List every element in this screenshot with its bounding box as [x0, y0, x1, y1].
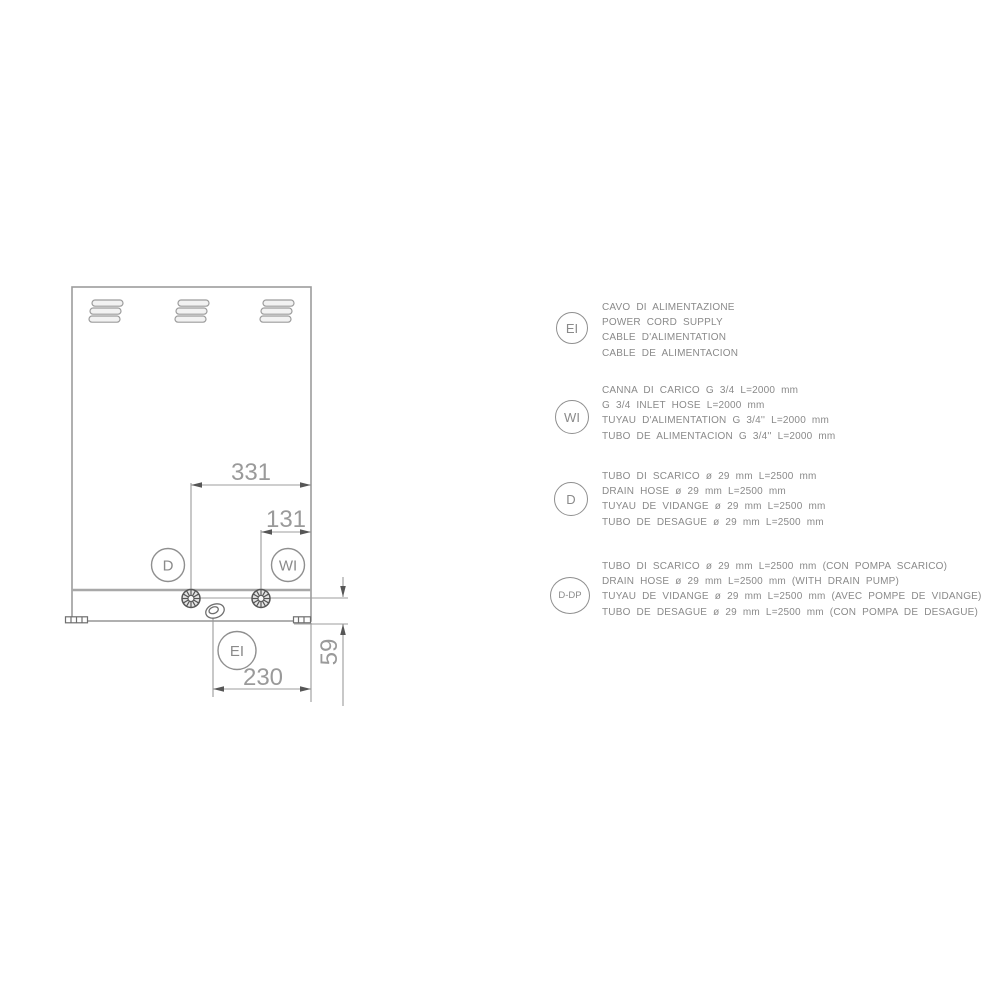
vent-slot: [178, 300, 209, 306]
technical-drawing-svg: 331 131 230 59: [0, 0, 1000, 1000]
dim-label-331: 331: [231, 459, 271, 486]
arrow-left-icon: [213, 686, 224, 692]
vent-grille-left: [89, 300, 123, 322]
legend-text-line: DRAIN HOSE ø 29 mm L=2500 mm (WITH DRAIN…: [602, 574, 982, 589]
page: 331 131 230 59: [0, 0, 1000, 1000]
callout-drain-label: D: [163, 558, 174, 575]
callout-water-inlet: WI: [272, 549, 305, 582]
legend-symbol-wi: WI: [555, 400, 589, 434]
callout-water-inlet-label: WI: [279, 558, 297, 575]
legend-symbol-d: D: [554, 482, 588, 516]
legend-text-line: POWER CORD SUPPLY: [602, 315, 738, 330]
legend-text-line: TUYAU DE VIDANGE ø 29 mm L=2500 mm (AVEC…: [602, 589, 982, 604]
dimension-131: 131: [261, 506, 311, 535]
left-foot: [66, 617, 88, 623]
legend-text-line: TUBO DE DESAGUE ø 29 mm L=2500 mm (CON P…: [602, 605, 982, 620]
legend-text-line: G 3/4 INLET HOSE L=2000 mm: [602, 398, 835, 413]
legend-text-line: TUBO DI SCARICO ø 29 mm L=2500 mm: [602, 469, 826, 484]
vent-grille-right: [260, 300, 294, 322]
vent-slot: [260, 316, 291, 322]
callout-electric-inlet-label: EI: [230, 643, 244, 660]
arrow-down-icon: [340, 586, 346, 597]
legend-text-line: CABLE DE ALIMENTACION: [602, 346, 738, 361]
vent-slot: [89, 316, 120, 322]
right-foot: [294, 617, 311, 623]
callout-electric-inlet: EI: [218, 632, 256, 670]
vent-slot: [90, 308, 121, 314]
legend-text-line: CANNA DI CARICO G 3/4 L=2000 mm: [602, 383, 835, 398]
drain-connector-rosette: [182, 590, 200, 608]
dim-label-59: 59: [316, 639, 343, 666]
vent-slot: [175, 316, 206, 322]
vent-grille-center: [175, 300, 209, 322]
legend-text-line: TUBO DE ALIMENTACION G 3/4'' L=2000 mm: [602, 429, 835, 444]
dimension-59: 59: [316, 577, 346, 706]
vent-slot: [176, 308, 207, 314]
vent-slot: [263, 300, 294, 306]
legend-text-line: TUBO DI SCARICO ø 29 mm L=2500 mm (CON P…: [602, 559, 982, 574]
legend-text-line: TUBO DE DESAGUE ø 29 mm L=2500 mm: [602, 515, 826, 530]
dim-label-131: 131: [266, 506, 306, 533]
callout-drain: D: [152, 549, 185, 582]
legend-text-line: CAVO DI ALIMENTAZIONE: [602, 300, 738, 315]
legend-symbol-ei: EI: [556, 312, 588, 344]
vent-slot: [261, 308, 292, 314]
arrow-up-icon: [340, 624, 346, 635]
legend-symbol-d-dp: D-DP: [550, 577, 590, 614]
arrow-right-icon: [300, 686, 311, 692]
water-inlet-connector-rosette: [252, 590, 270, 608]
legend-text-line: CABLE D'ALIMENTATION: [602, 330, 738, 345]
vent-slot: [92, 300, 123, 306]
dim-label-230: 230: [243, 664, 283, 691]
legend-text-line: DRAIN HOSE ø 29 mm L=2500 mm: [602, 484, 826, 499]
legend-text-line: TUYAU D'ALIMENTATION G 3/4'' L=2000 mm: [602, 413, 835, 428]
legend-text-line: TUYAU DE VIDANGE ø 29 mm L=2500 mm: [602, 499, 826, 514]
dimension-230: 230: [213, 664, 311, 692]
